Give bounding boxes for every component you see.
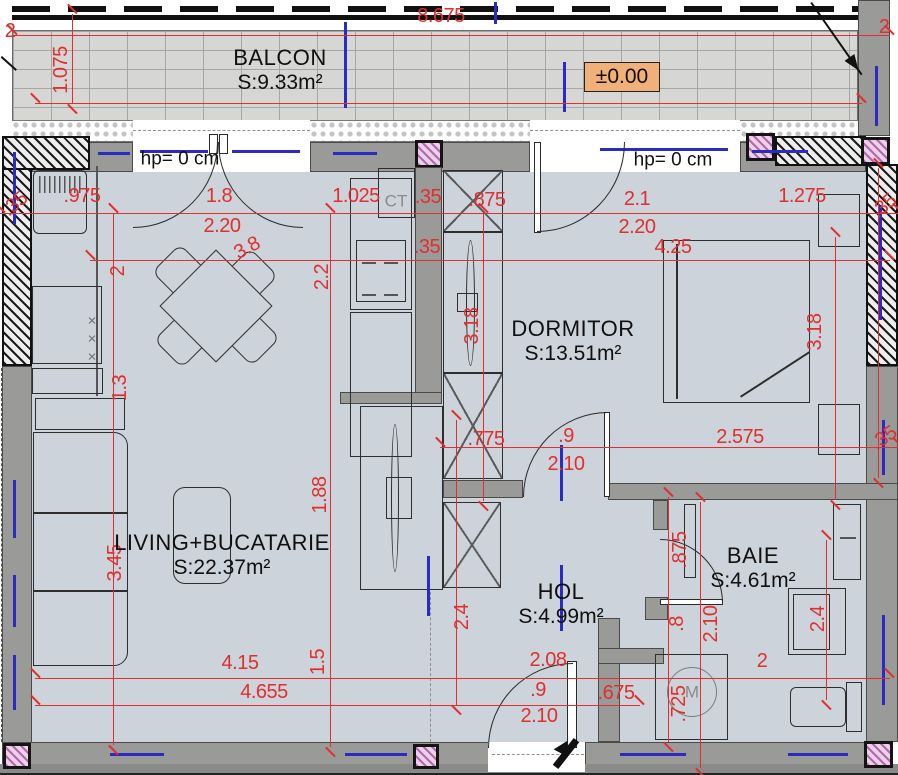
- dimension-label: 1.275: [778, 186, 826, 206]
- axis-line: [13, 480, 16, 538]
- dimension-line: [12, 35, 890, 36]
- room-label-hol: HOLS:4.99m²: [518, 579, 603, 629]
- axis-line: [427, 556, 430, 616]
- dimension-label: 1.5: [308, 649, 328, 675]
- column: [746, 133, 775, 161]
- axis-line: [345, 753, 407, 756]
- dimension-line: [0, 213, 898, 214]
- dimension-label: .975: [64, 186, 101, 206]
- interior-wall: [608, 483, 898, 500]
- threshold-line: [492, 754, 584, 755]
- dimension-label: 3.18: [462, 308, 482, 345]
- column: [415, 140, 443, 168]
- dimension-label: .875: [469, 190, 506, 210]
- equipment-label: ×: [88, 314, 97, 329]
- dimension-label: .9: [530, 680, 546, 700]
- dimension-label: 1.025: [332, 186, 380, 206]
- dimension-line: [35, 678, 890, 679]
- sink-mark: [840, 537, 856, 539]
- room-label-dormitor: DORMITORS:13.51m²: [511, 316, 634, 366]
- axis-line: [13, 575, 16, 627]
- dimension-line: [90, 260, 890, 261]
- closet: [443, 502, 501, 588]
- dimension-label: 2: [757, 651, 768, 671]
- column: [864, 741, 893, 768]
- shelf-mark: [362, 262, 376, 264]
- interior-wall: [653, 500, 668, 530]
- dimension-line: [440, 447, 898, 448]
- dimension-line: [35, 103, 862, 104]
- axis-line: [882, 615, 885, 705]
- property-line: [1, 368, 2, 742]
- level-marker-value: ±0.00: [596, 65, 648, 89]
- dimension-label: 2: [108, 266, 128, 277]
- equipment-label: ×: [88, 332, 97, 347]
- axis-line: [563, 62, 566, 112]
- window-sill-line: [530, 130, 740, 131]
- axis-line: [98, 152, 130, 155]
- column: [3, 743, 31, 769]
- dimension-label: 1.88: [310, 477, 330, 514]
- axis-line: [875, 66, 878, 126]
- shelf-mark: [362, 294, 376, 296]
- insulation-strip: [310, 120, 530, 142]
- dimension-label: 2.10: [521, 706, 558, 726]
- closet: [443, 373, 503, 479]
- sofa-armrest: [35, 398, 125, 430]
- equipment-label: ×: [88, 350, 97, 365]
- dimension-label: .675: [598, 683, 635, 703]
- wall-segment: [2, 366, 32, 746]
- dimension-label: 8.675: [417, 6, 465, 26]
- dimension-line: [113, 213, 114, 745]
- dimension-label: .775: [468, 429, 505, 449]
- dimension-line: [483, 213, 484, 501]
- floor-plan: ±0.00 28.67521.075.35.9751.82.203.81.025…: [0, 0, 898, 775]
- window-sill-line: [133, 130, 310, 131]
- balcony-floor-tiles: [12, 30, 858, 122]
- dimension-label: 2.575: [716, 427, 764, 447]
- dimension-label: .35: [414, 237, 440, 257]
- room-label-balcon: BALCONS:9.33m²: [233, 45, 326, 95]
- axis-line: [333, 152, 377, 155]
- dimension-label: .875: [670, 532, 690, 569]
- window-parapet-label: hp= 0 cm: [634, 151, 713, 170]
- shelf-mark: [384, 262, 398, 264]
- bathroom-sink: [833, 504, 861, 580]
- axis-line: [494, 2, 497, 24]
- dimension-label: 2: [879, 17, 890, 37]
- dimension-label: 3.18: [805, 314, 825, 351]
- dimension-label: 4.15: [222, 653, 259, 673]
- lower-neighbour-slab: [0, 764, 898, 775]
- kitchen-cabinet: [32, 368, 103, 394]
- dimension-label: 2.08: [530, 650, 567, 670]
- tv-stand: [386, 477, 412, 519]
- room-label-baie: BAIES:4.61m²: [710, 543, 795, 593]
- axis-line: [752, 150, 808, 153]
- level-marker: ±0.00: [584, 62, 660, 92]
- dimension-label: 2: [5, 21, 16, 41]
- dimension-label: 1.075: [51, 46, 71, 94]
- bed-pillow-line: [676, 244, 678, 399]
- equipment-label: CT: [385, 193, 408, 210]
- hatched-wall: [2, 136, 32, 366]
- dimension-label: 2.1: [624, 189, 650, 209]
- axis-line: [620, 753, 686, 756]
- interior-wall: [598, 618, 620, 742]
- room-label-living-bucatarie: LIVING+BUCATARIES:22.37m²: [114, 530, 330, 580]
- dimension-label: 1.8: [206, 186, 232, 206]
- dimension-label: 2.20: [204, 216, 241, 236]
- dimension-label: 2.10: [548, 454, 585, 474]
- axis-line: [13, 655, 16, 710]
- dimension-line: [835, 237, 836, 500]
- dimension-label: .9: [558, 426, 574, 446]
- dimension-label: 2.10: [701, 606, 721, 643]
- open-boundary-line: [430, 592, 431, 742]
- toilet-tank: [846, 682, 862, 732]
- axis-line: [788, 753, 848, 756]
- dimension-line: [72, 14, 73, 104]
- shelf-mark: [384, 294, 398, 296]
- bed: [663, 240, 810, 403]
- dimension-label: 1.3: [110, 375, 130, 401]
- toilet-bowl: [790, 687, 846, 727]
- dimension-label: 2.2: [312, 264, 332, 290]
- dimension-label: 2.20: [619, 217, 656, 237]
- dimension-label: 2.4: [452, 604, 472, 630]
- column: [413, 744, 439, 769]
- dimension-label: 2.4: [808, 606, 828, 632]
- dimension-label: .35: [415, 187, 441, 207]
- dimension-label: .8: [667, 616, 687, 632]
- fridge-inner: [356, 240, 406, 302]
- window-parapet-label: hp= 0 cm: [141, 150, 220, 169]
- dimension-label: 4.655: [240, 682, 288, 702]
- dimension-label: 4.25: [655, 237, 692, 257]
- equipment-label: M: [685, 684, 699, 701]
- dimension-line: [456, 420, 457, 705]
